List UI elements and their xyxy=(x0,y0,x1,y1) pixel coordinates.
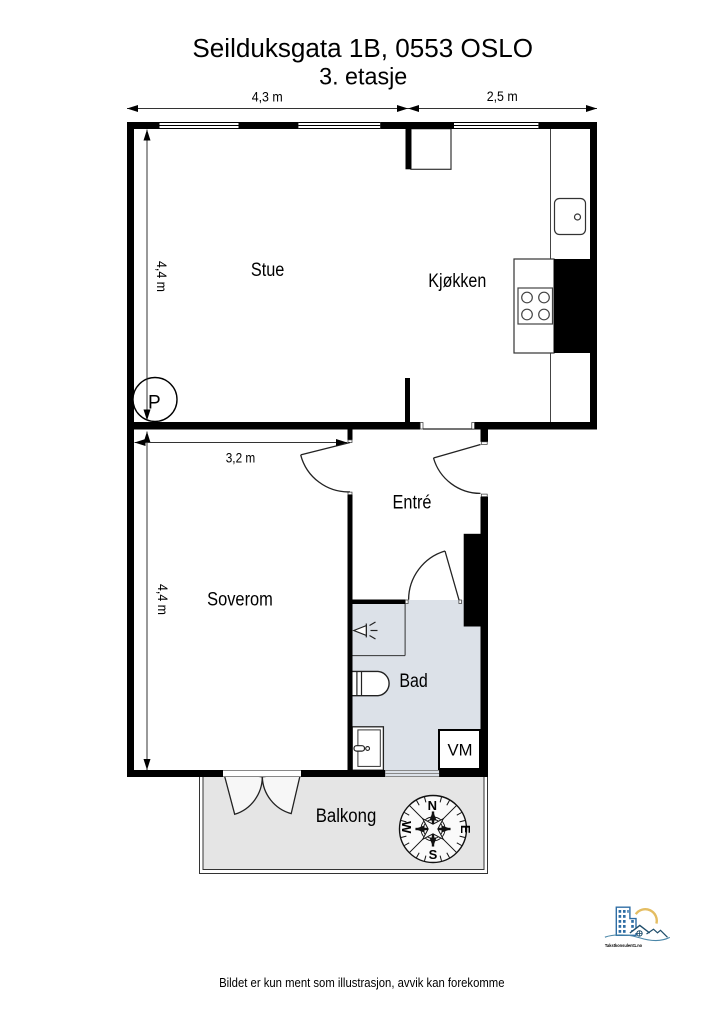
svg-text:4,4 m: 4,4 m xyxy=(155,584,171,615)
svg-text:2,5 m: 2,5 m xyxy=(487,88,518,104)
svg-text:E: E xyxy=(458,825,473,834)
svg-text:Soverom: Soverom xyxy=(207,589,273,610)
svg-text:VM: VM xyxy=(448,741,473,760)
svg-text:Balkong: Balkong xyxy=(316,806,377,827)
svg-text:W: W xyxy=(399,821,414,834)
svg-text:3. etasje: 3. etasje xyxy=(319,63,407,90)
svg-text:Stue: Stue xyxy=(251,260,285,281)
svg-text:4,4 m: 4,4 m xyxy=(154,261,170,292)
svg-text:3,2 m: 3,2 m xyxy=(226,450,256,466)
svg-text:Bildet er kun ment som illustr: Bildet er kun ment som illustrasjon, avv… xyxy=(219,976,504,990)
svg-text:S: S xyxy=(429,847,438,862)
svg-text:Bad: Bad xyxy=(399,671,427,692)
svg-text:Entré: Entré xyxy=(393,493,432,514)
svg-text:Takstkonsulent1.no: Takstkonsulent1.no xyxy=(605,943,642,948)
svg-text:N: N xyxy=(428,798,437,813)
svg-text:Kjøkken: Kjøkken xyxy=(428,271,486,292)
svg-text:4,3 m: 4,3 m xyxy=(252,88,283,104)
svg-text:Seilduksgata 1B, 0553 OSLO: Seilduksgata 1B, 0553 OSLO xyxy=(192,33,533,63)
